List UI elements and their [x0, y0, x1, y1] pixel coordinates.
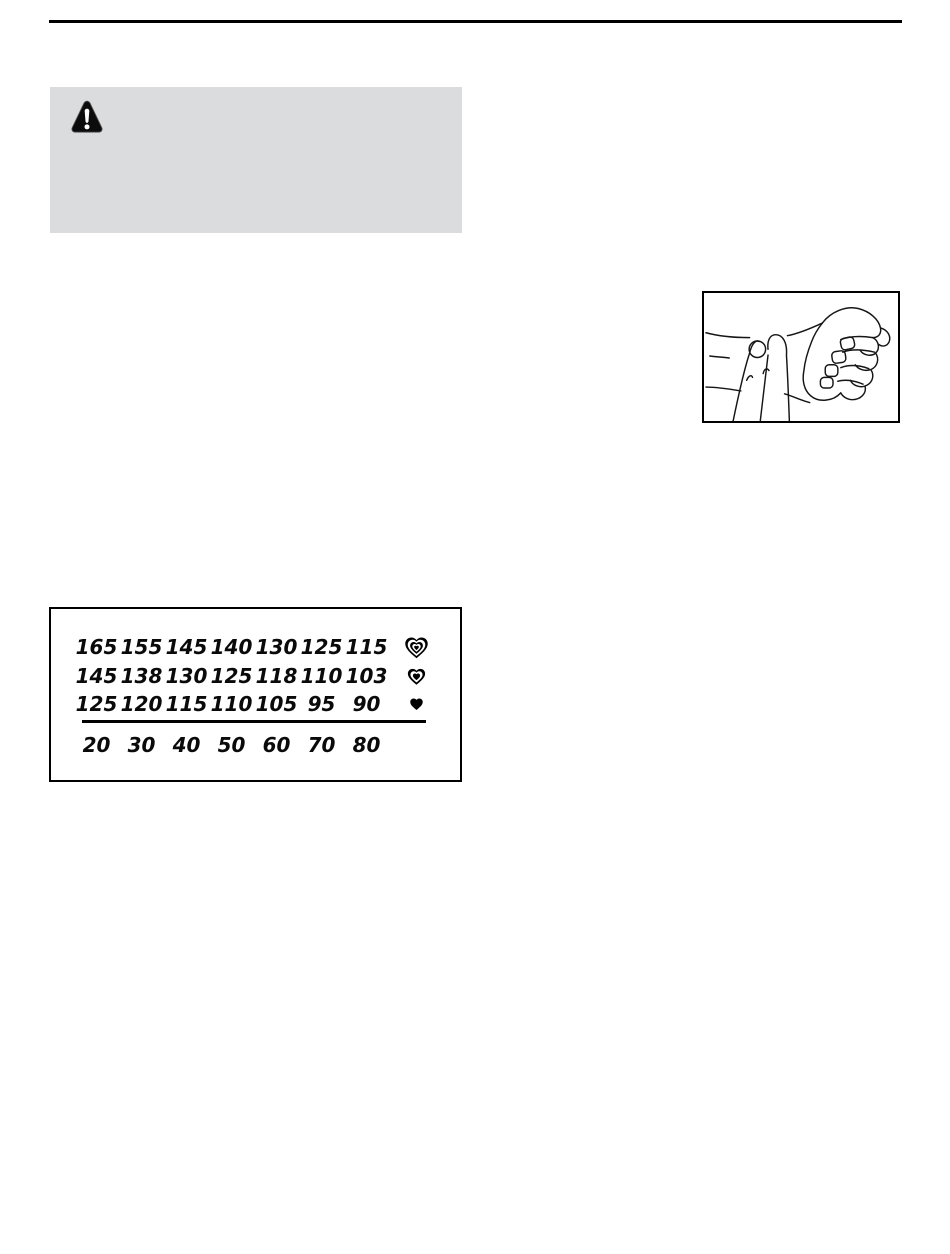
age-value: 80: [344, 733, 389, 757]
hr-value: 118: [254, 664, 299, 688]
hr-value: 110: [209, 692, 254, 716]
age-value: 70: [299, 733, 344, 757]
age-value: 60: [254, 733, 299, 757]
hr-value: 145: [164, 635, 209, 659]
heart-rate-table: 165 155 145 140 130 125 115 145 138 130 …: [49, 607, 462, 782]
age-value: 20: [74, 733, 119, 757]
table-row-ages: 20 30 40 50 60 70 80: [51, 731, 443, 759]
age-value: 50: [209, 733, 254, 757]
hr-value: 103: [344, 664, 389, 688]
hr-value: 165: [74, 635, 119, 659]
table-row: 125 120 115 110 105 95 90: [51, 690, 443, 718]
hr-value: 140: [209, 635, 254, 659]
hr-value: 145: [74, 664, 119, 688]
page-top-rule: [49, 20, 902, 23]
warning-triangle-icon: [71, 99, 103, 134]
age-value: 40: [164, 733, 209, 757]
warning-callout-box: [50, 87, 462, 233]
hr-value: 120: [119, 692, 164, 716]
hr-value: 125: [209, 664, 254, 688]
table-row: 165 155 145 140 130 125 115: [51, 633, 443, 661]
hr-value: 130: [164, 664, 209, 688]
manual-page: 165 155 145 140 130 125 115 145 138 130 …: [0, 0, 950, 1254]
pulse-figure-frame: [702, 291, 900, 423]
table-divider-rule: [82, 720, 426, 723]
hr-value: 155: [119, 635, 164, 659]
heart-solid-icon: [389, 697, 443, 711]
age-value: 30: [119, 733, 164, 757]
heart-triple-icon: [389, 635, 443, 660]
hr-value: 95: [299, 692, 344, 716]
hr-value: 110: [299, 664, 344, 688]
hr-value: 125: [74, 692, 119, 716]
table-row: 145 138 130 125 118 110 103: [51, 662, 443, 690]
hr-value: 115: [164, 692, 209, 716]
hr-value: 125: [299, 635, 344, 659]
hr-value: 138: [119, 664, 164, 688]
hr-value: 105: [254, 692, 299, 716]
fingers-on-wrist-illustration: [704, 293, 898, 421]
hr-value: 130: [254, 635, 299, 659]
heart-double-icon: [389, 667, 443, 686]
hr-value: 115: [344, 635, 389, 659]
hr-value: 90: [344, 692, 389, 716]
